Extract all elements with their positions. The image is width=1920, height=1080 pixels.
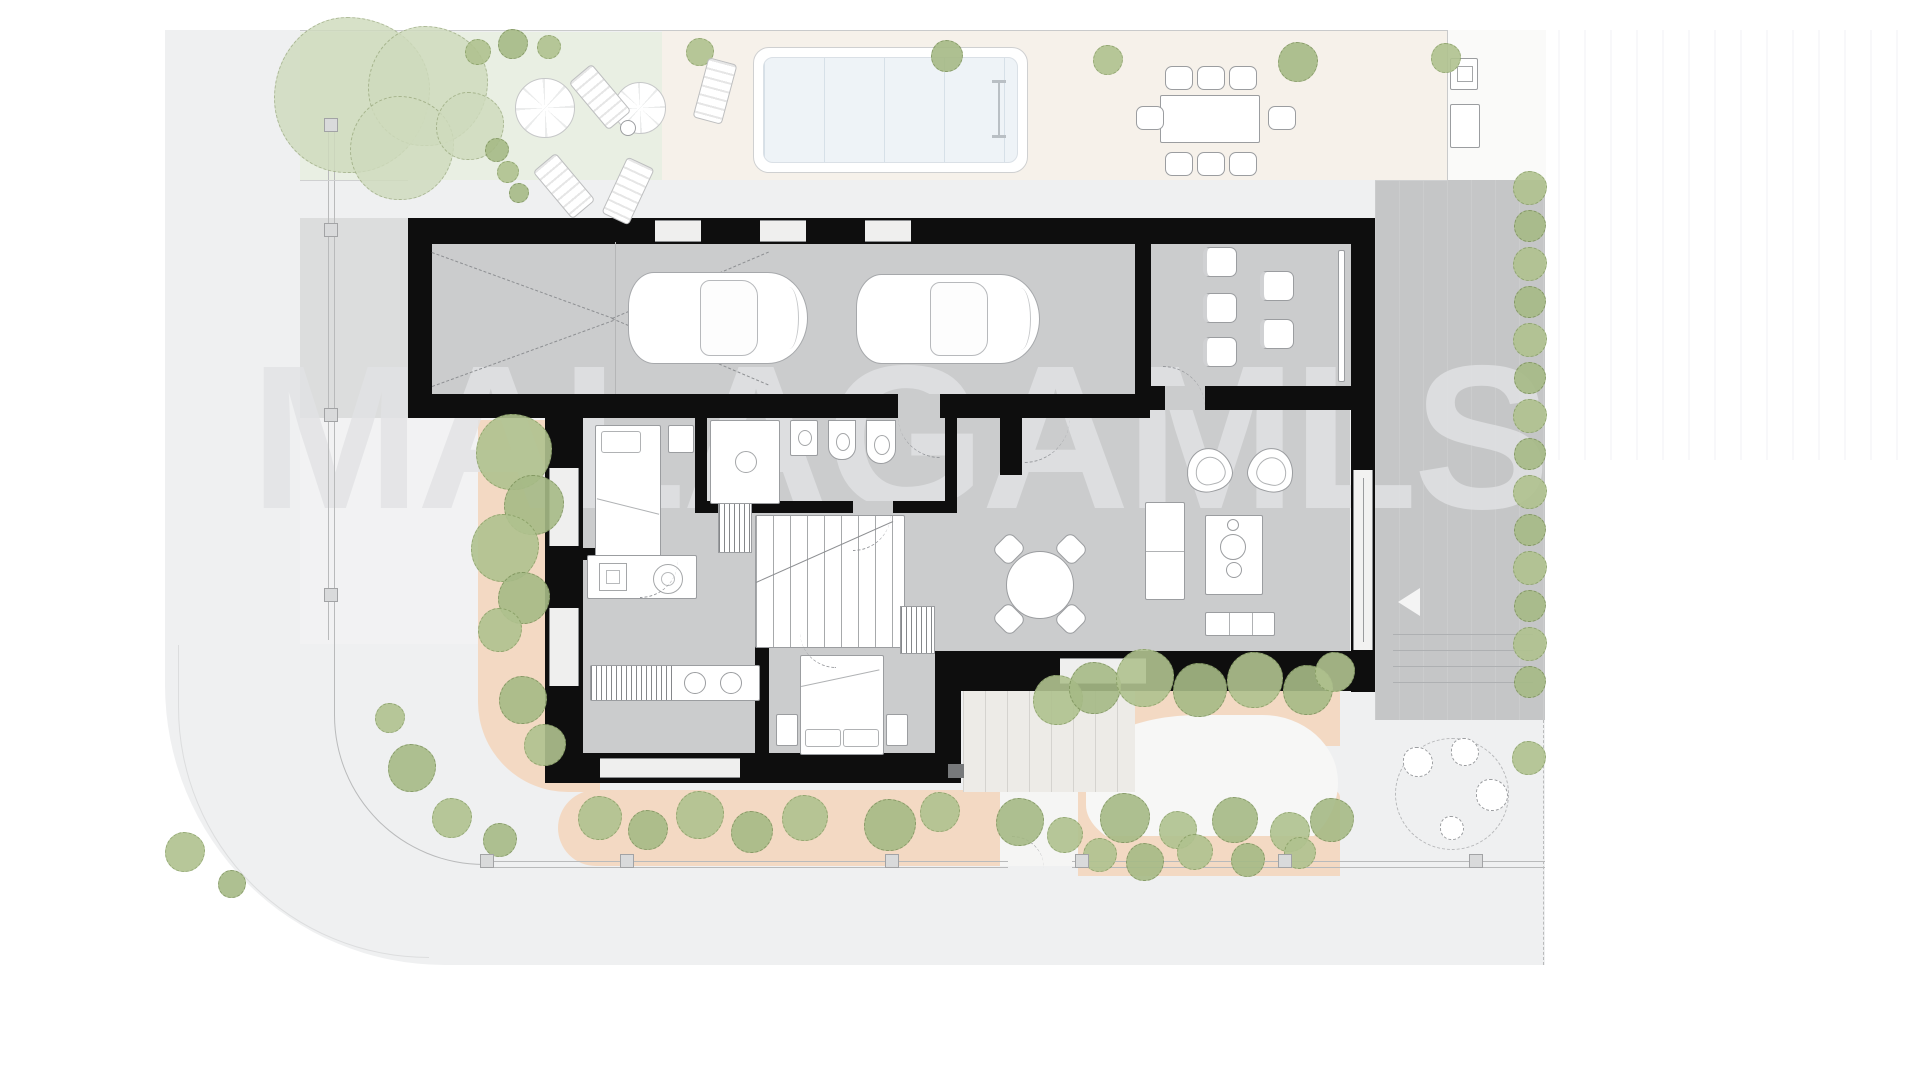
fence-post bbox=[324, 408, 338, 422]
wall-living-stub bbox=[1000, 417, 1022, 475]
office-chair-icon bbox=[1260, 271, 1294, 301]
bed-double-icon bbox=[800, 655, 884, 755]
fence-post bbox=[480, 854, 494, 868]
wall-corridor bbox=[945, 417, 957, 513]
fence-bottom bbox=[484, 867, 1008, 868]
garden-chair-icon bbox=[1440, 816, 1464, 840]
outdoor-chair-icon bbox=[1268, 106, 1296, 130]
fence-post bbox=[324, 118, 338, 132]
bed-single-icon bbox=[595, 425, 661, 557]
fence-post bbox=[620, 854, 634, 868]
stool-icon bbox=[684, 672, 706, 694]
driveway-step-line bbox=[1393, 634, 1533, 635]
outdoor-chair-icon bbox=[1197, 152, 1225, 176]
shower-icon bbox=[710, 420, 780, 504]
window bbox=[655, 220, 701, 242]
fence-left bbox=[328, 120, 329, 640]
table-deco bbox=[1220, 534, 1246, 560]
side-table bbox=[620, 120, 636, 136]
sideboard bbox=[1205, 612, 1275, 636]
outdoor-chair-icon bbox=[1165, 66, 1193, 90]
fence-post bbox=[324, 223, 338, 237]
garden-chair-icon bbox=[1403, 747, 1433, 777]
fence-bottom bbox=[484, 861, 1008, 862]
window-bottom bbox=[600, 758, 740, 778]
window bbox=[760, 220, 806, 242]
wall-stub bbox=[948, 764, 964, 778]
sofa-icon bbox=[1145, 502, 1185, 600]
office-chair-icon bbox=[1260, 319, 1294, 349]
wardrobe-icon bbox=[900, 606, 935, 654]
fence-post bbox=[1075, 854, 1089, 868]
tree-icon bbox=[165, 832, 205, 872]
umbrella-icon bbox=[515, 78, 575, 138]
tree-icon bbox=[218, 870, 246, 898]
outdoor-dining-table bbox=[1160, 95, 1260, 143]
bbq-counter-icon bbox=[1450, 104, 1480, 148]
office-chair-icon bbox=[1203, 293, 1237, 323]
table-deco bbox=[1226, 562, 1242, 578]
car-icon bbox=[628, 272, 808, 364]
driveway-arrow-icon bbox=[1398, 588, 1420, 616]
office-board bbox=[1338, 250, 1345, 382]
outdoor-chair-icon bbox=[1229, 152, 1257, 176]
office-chair-icon bbox=[1203, 337, 1237, 367]
car-icon bbox=[856, 274, 1040, 364]
fence-post bbox=[885, 854, 899, 868]
door-gap bbox=[853, 501, 893, 513]
driveway-step-line bbox=[1393, 650, 1533, 651]
fence-left bbox=[334, 120, 335, 640]
driveway-step-line bbox=[1393, 682, 1533, 683]
office-chair-icon bbox=[1203, 247, 1237, 277]
fence-post bbox=[324, 588, 338, 602]
pool-water bbox=[763, 57, 1018, 163]
basin-icon bbox=[790, 420, 818, 456]
stool-icon bbox=[720, 672, 742, 694]
table-deco bbox=[1227, 519, 1239, 531]
pool bbox=[753, 47, 1028, 173]
door-gap bbox=[898, 394, 940, 418]
floor-plan-canvas: MALAGAMLS bbox=[0, 0, 1920, 1080]
glass-door-right bbox=[1353, 470, 1373, 650]
pool-ladder-icon bbox=[992, 80, 1008, 138]
wall-bed1-bath bbox=[695, 417, 707, 513]
garden-chair-icon bbox=[1476, 779, 1508, 811]
outdoor-chair-icon bbox=[1197, 66, 1225, 90]
outdoor-chair-icon bbox=[1136, 106, 1164, 130]
toilet-icon bbox=[866, 420, 896, 464]
nightstand bbox=[776, 714, 798, 746]
terrace-edge bbox=[1375, 180, 1447, 181]
nightstand bbox=[886, 714, 908, 746]
wall-office-left bbox=[1135, 218, 1151, 410]
fence-post bbox=[1469, 854, 1483, 868]
window-left bbox=[549, 608, 579, 686]
garden-chair-icon bbox=[1451, 738, 1479, 766]
fence-post bbox=[1278, 854, 1292, 868]
driveway-step-line bbox=[1393, 666, 1533, 667]
wall-bedroom-right bbox=[935, 651, 961, 757]
bidet-icon bbox=[828, 420, 856, 460]
outdoor-chair-icon bbox=[1229, 66, 1257, 90]
wall-garage-left bbox=[408, 218, 432, 418]
neighbor-stripes bbox=[1558, 30, 1898, 460]
outdoor-chair-icon bbox=[1165, 152, 1193, 176]
plot-boundary-top bbox=[300, 30, 1447, 31]
window bbox=[865, 220, 911, 242]
nightstand bbox=[668, 425, 694, 453]
garage-bay-line bbox=[615, 242, 616, 394]
